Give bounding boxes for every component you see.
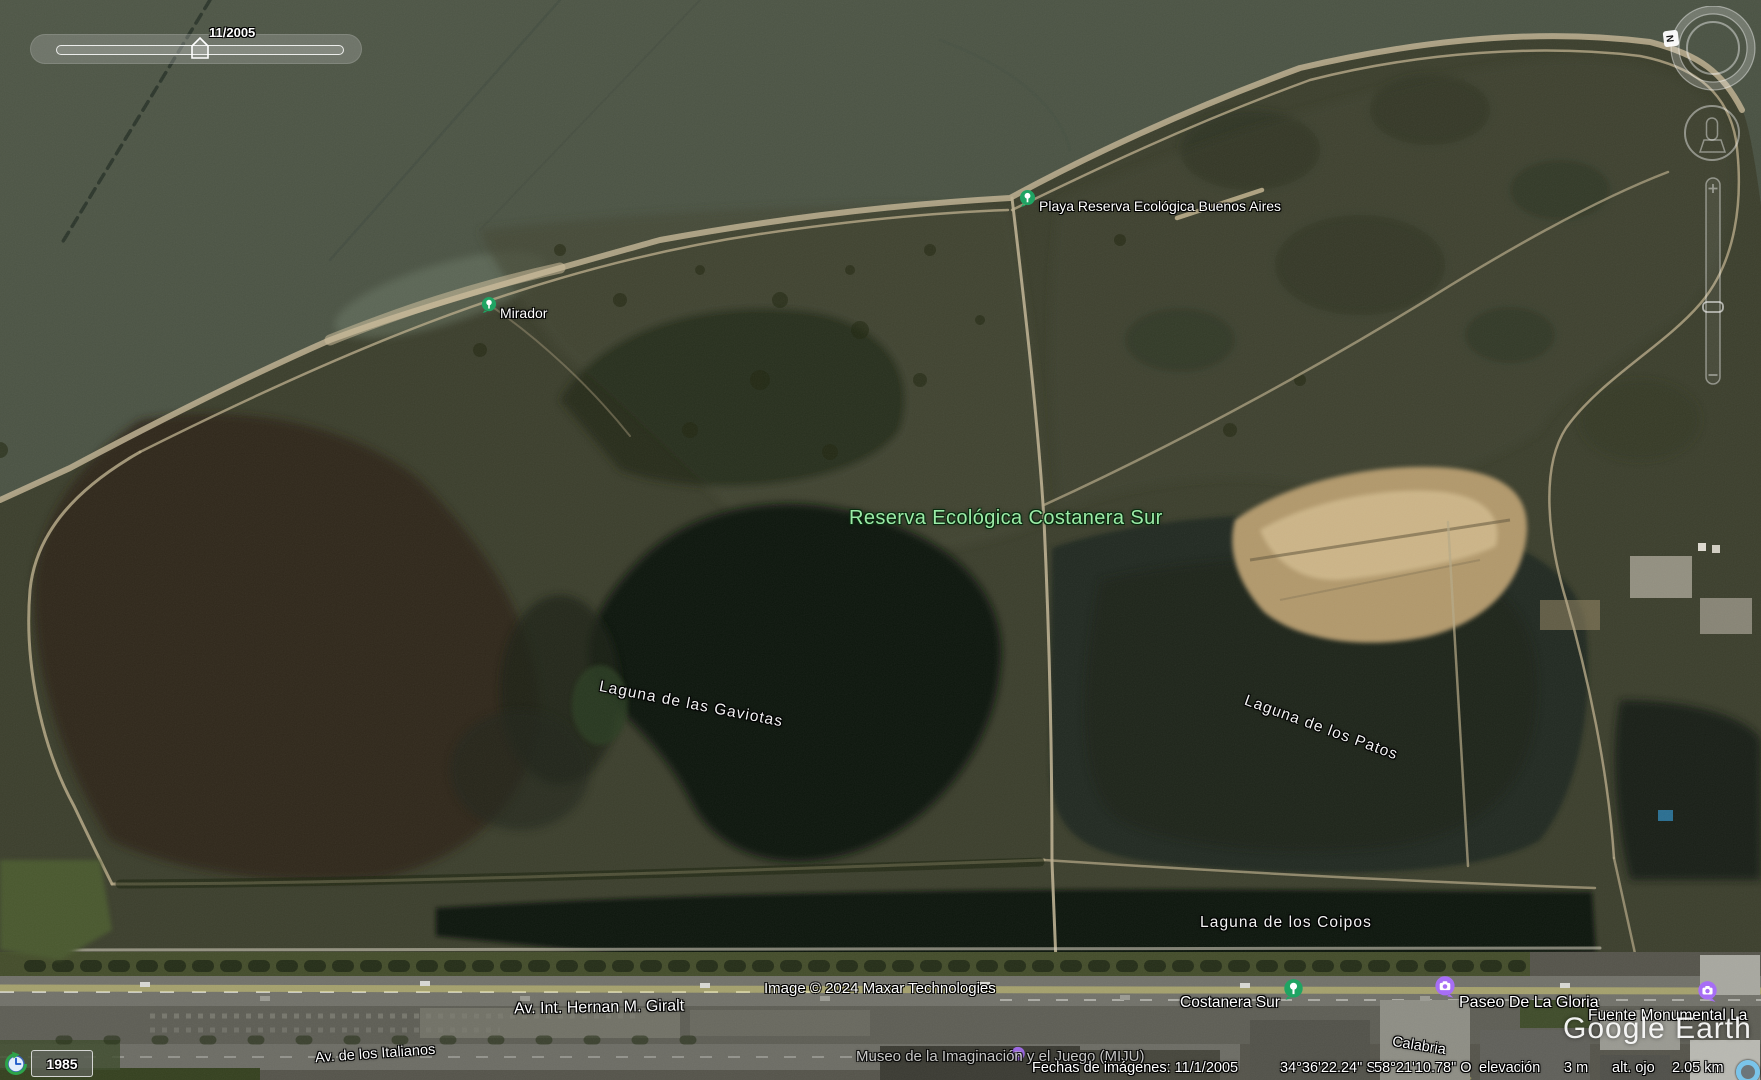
time-slider-date: 11/2005 — [209, 25, 255, 40]
lagoon-coipos-label: Laguna de los Coipos — [1200, 914, 1372, 932]
status-elevation-value: 3 m — [1564, 1060, 1588, 1076]
poi-fuente-pin[interactable] — [1697, 980, 1718, 1003]
navigation-controls[interactable] — [1652, 6, 1761, 396]
park-icon[interactable] — [481, 296, 497, 314]
park-icon[interactable] — [1283, 978, 1304, 1001]
imagery-copyright: Image © 2024 Maxar Technologies — [764, 980, 996, 997]
poi-paseo-gloria[interactable]: Paseo De La Gloria — [1434, 975, 1599, 1012]
street-giralt-label: Av. Int. Hernan M. Giralt — [514, 998, 684, 1019]
google-earth-logo: Google Earth — [1563, 1012, 1752, 1046]
time-slider-handle[interactable] — [190, 36, 210, 60]
park-icon[interactable] — [1019, 189, 1036, 208]
streaming-indicator-icon — [1736, 1060, 1760, 1080]
google-earth-window: Reserva Ecológica Costanera Sur Laguna d… — [0, 0, 1761, 1080]
satellite-map[interactable] — [0, 0, 1761, 1080]
museum-icon[interactable] — [1697, 980, 1718, 1003]
poi-mirador[interactable]: Mirador — [481, 296, 547, 321]
poi-costanera-label[interactable]: Costanera Sur — [1180, 994, 1280, 1012]
look-joystick[interactable] — [1687, 22, 1739, 74]
reserve-title-label: Reserva Ecológica Costanera Sur — [849, 507, 1163, 530]
museum-icon[interactable] — [1434, 975, 1456, 999]
grain-texture — [0, 0, 1761, 1080]
status-eye-alt-label: alt. ojo — [1612, 1060, 1655, 1076]
compass-north-marker[interactable]: N — [1663, 30, 1680, 48]
historical-imagery-slider[interactable]: 11/2005 — [30, 34, 362, 64]
status-latitude: 34°36'22.24" S — [1280, 1060, 1376, 1076]
status-elevation-label: elevación — [1479, 1060, 1540, 1076]
status-imagery-date: Fechas de imágenes: 11/1/2005 — [1032, 1060, 1238, 1076]
status-eye-alt-value: 2.05 km — [1672, 1060, 1724, 1076]
status-longitude: 58°21'10.78" O — [1374, 1060, 1472, 1076]
poi-playa[interactable]: Playa Reserva Ecológica Buenos Aires — [1019, 189, 1281, 214]
poi-playa-label[interactable]: Playa Reserva Ecológica Buenos Aires — [1039, 198, 1281, 214]
poi-paseo-label[interactable]: Paseo De La Gloria — [1459, 994, 1599, 1012]
poi-mirador-label[interactable]: Mirador — [500, 305, 547, 321]
zoom-slider-track[interactable] — [1706, 178, 1720, 384]
status-bar: Fechas de imágenes: 11/1/2005 34°36'22.2… — [0, 1060, 1761, 1080]
poi-costanera-sur[interactable]: Costanera Sur — [1180, 994, 1304, 1012]
